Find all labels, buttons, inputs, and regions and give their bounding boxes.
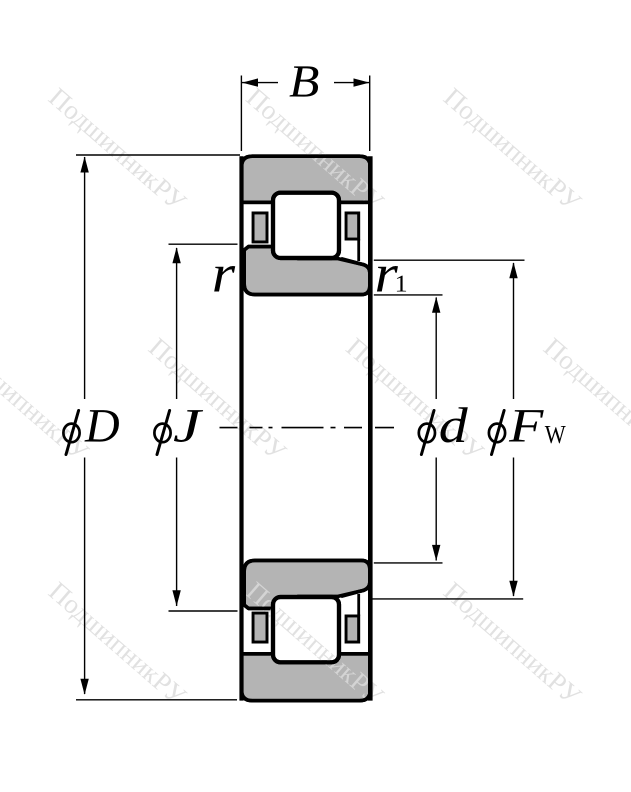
svg-text:d: d	[439, 397, 469, 453]
svg-text:J: J	[173, 400, 204, 453]
svg-text:B: B	[289, 56, 319, 107]
svg-text:D: D	[84, 400, 120, 453]
svg-text:W: W	[545, 420, 566, 449]
svg-text:1: 1	[395, 271, 408, 297]
svg-text:F: F	[508, 400, 544, 453]
svg-text:r: r	[212, 244, 236, 304]
